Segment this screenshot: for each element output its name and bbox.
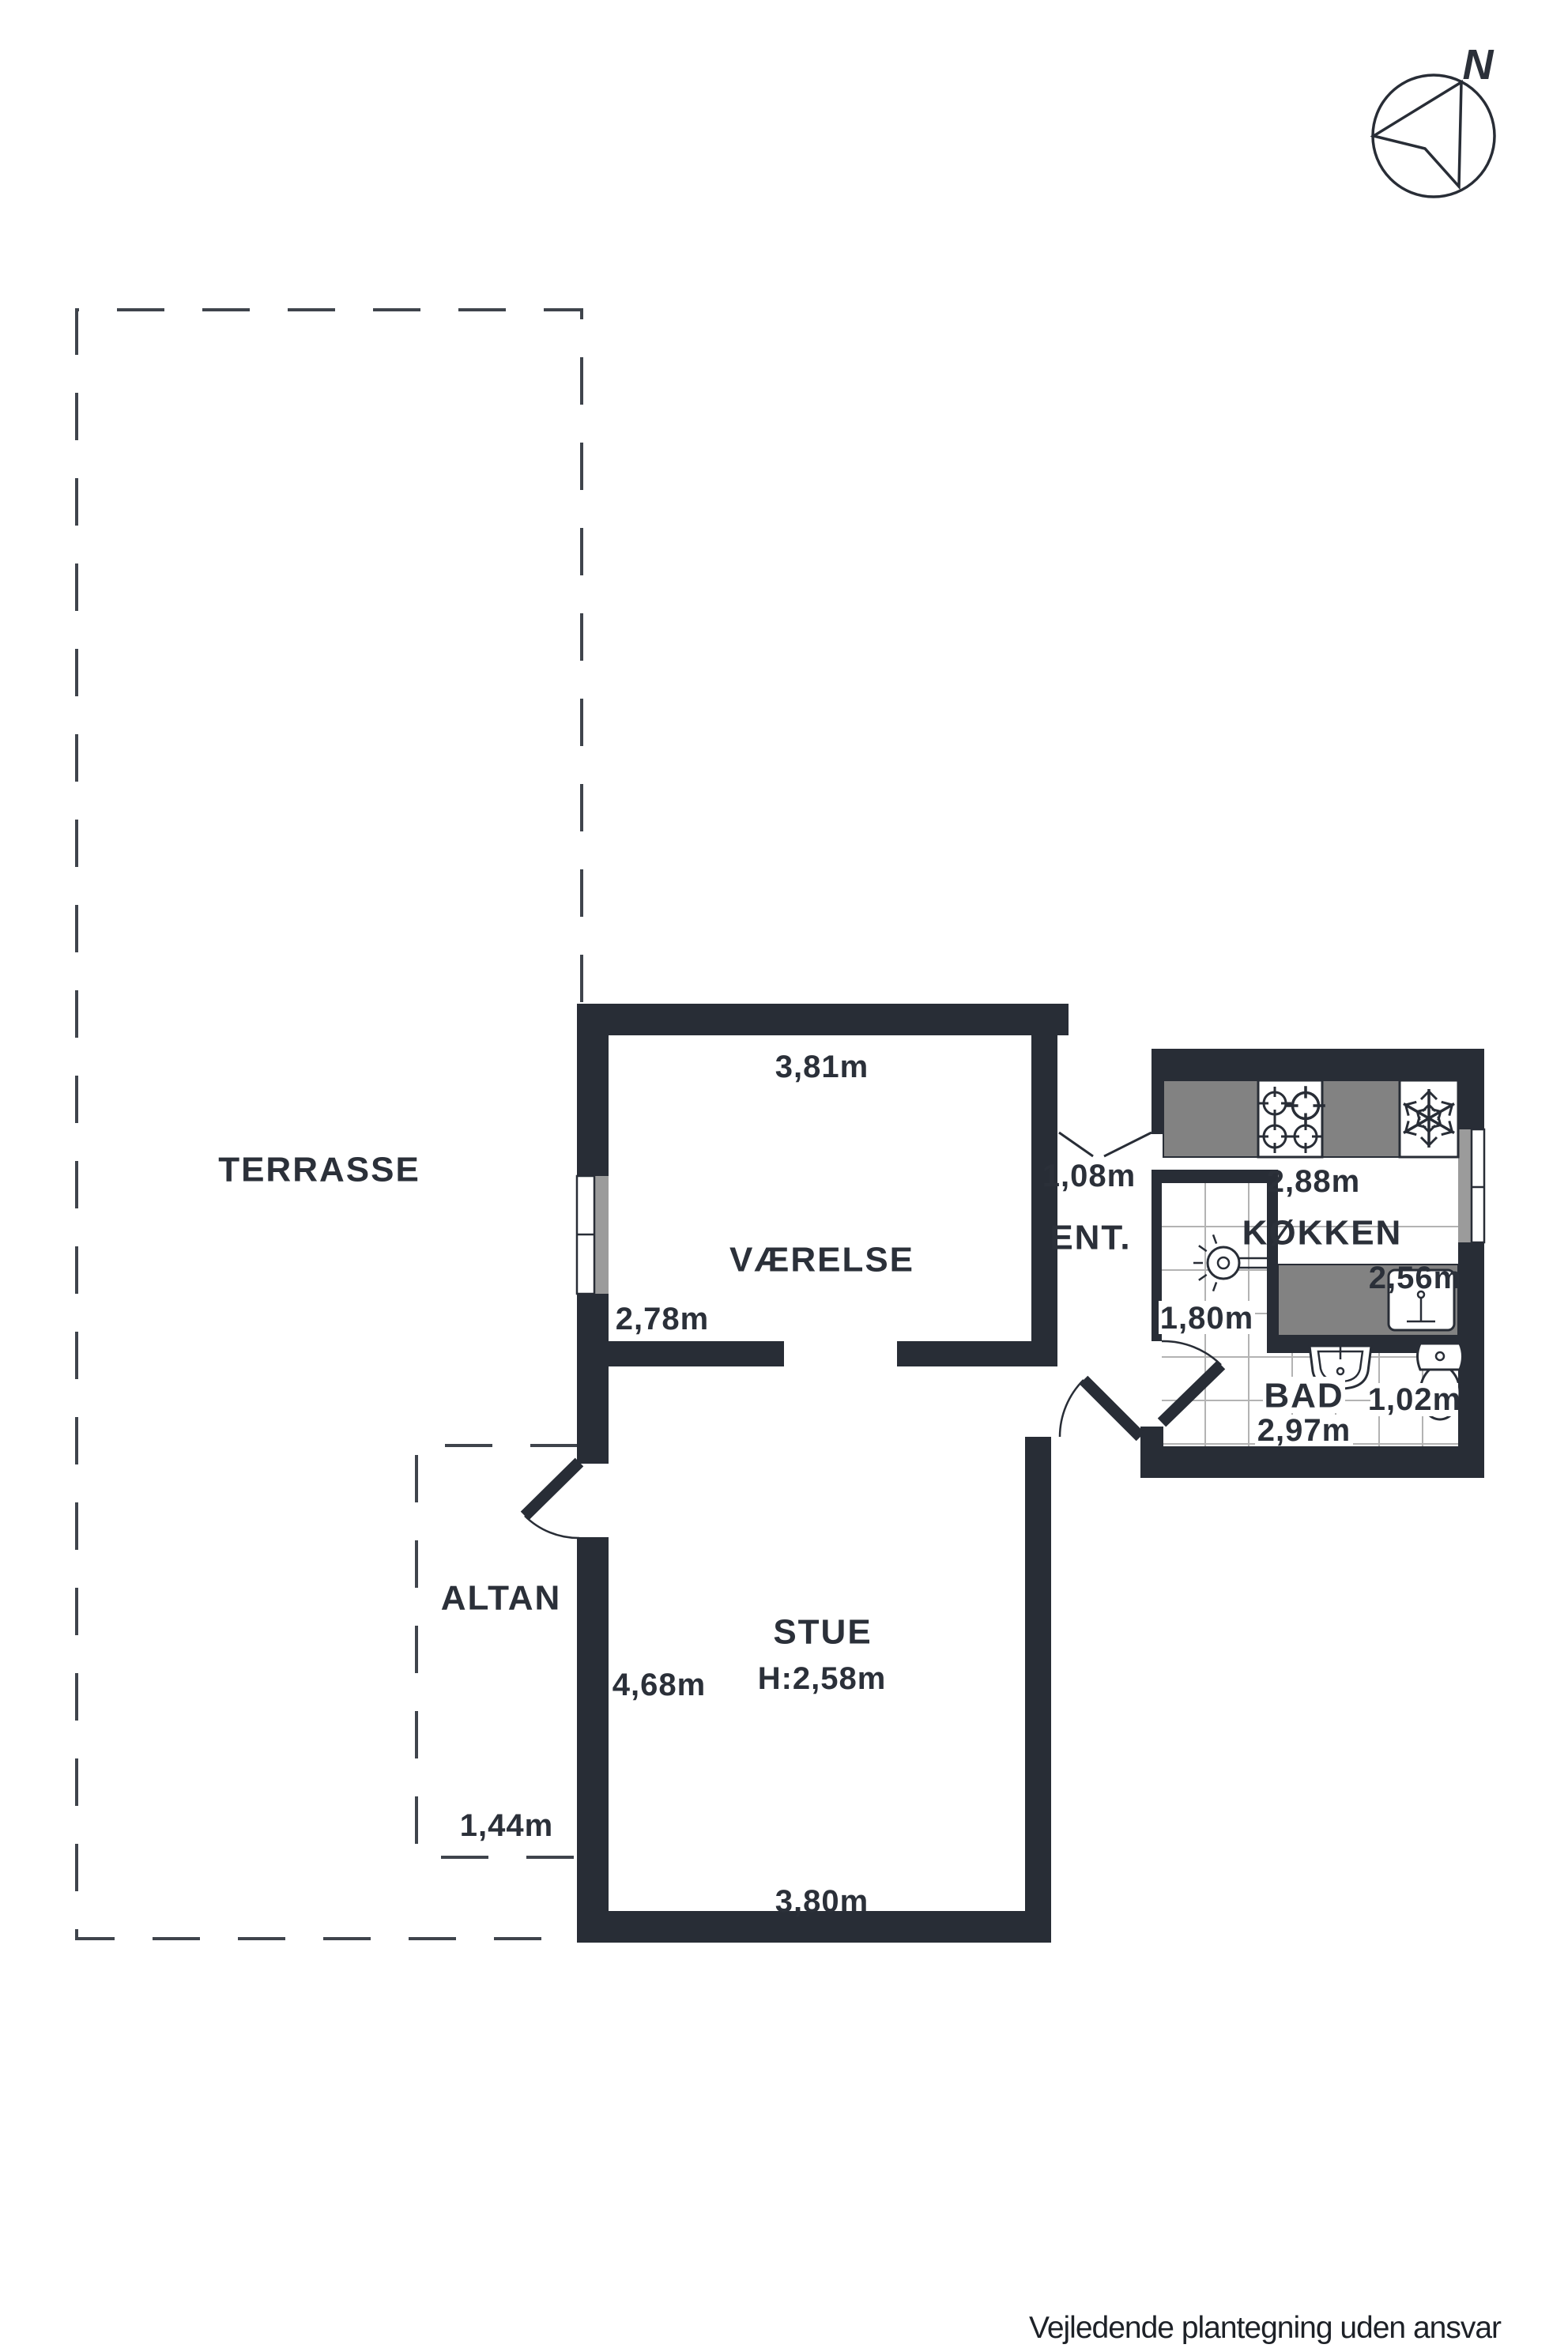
room-stue: STUE H:2,58m 4,68m 3,80m <box>612 1613 887 1920</box>
terrasse-dashed-outline <box>77 310 582 1939</box>
vaerelse-stue-wall-left-stub <box>607 1341 784 1366</box>
shower-right-wall <box>1267 1183 1278 1336</box>
terrasse-area: TERRASSE <box>77 310 582 1939</box>
bad-depth-dim: 1,02m <box>1368 1382 1461 1417</box>
altan-label: ALTAN <box>441 1579 562 1618</box>
koekken-width-dim: 2,88m <box>1267 1164 1360 1199</box>
left-wall-mid <box>577 1294 609 1464</box>
terrasse-label: TERRASSE <box>218 1151 420 1189</box>
doors <box>525 1341 1221 1538</box>
ent-label: ENT. <box>1050 1219 1131 1257</box>
compass-north-icon: N <box>1373 41 1494 197</box>
altan-area: ALTAN 1,44m <box>416 1445 578 1857</box>
vaerelse-ent-wall <box>1031 1035 1057 1366</box>
stue-label: STUE <box>773 1613 872 1652</box>
vaerelse-window <box>577 1176 609 1294</box>
stove-icon <box>1258 1080 1325 1157</box>
altan-dashed-outline <box>416 1445 578 1857</box>
vaerelse-label: VÆRELSE <box>729 1241 914 1280</box>
stue-right-wall <box>1025 1437 1051 1911</box>
bad-width-dim: 2,97m <box>1257 1413 1351 1448</box>
stue-ceiling-dim: H:2,58m <box>758 1661 887 1696</box>
floorplan-page: TERRASSE ALTAN 1,44m <box>0 0 1568 2352</box>
altan-width-dim: 1,44m <box>460 1808 553 1843</box>
compass-n-label: N <box>1463 41 1494 89</box>
bad-label: BAD <box>1264 1377 1344 1415</box>
footer-disclaimer: Vejledende plantegning uden ansvar <box>1029 2311 1502 2345</box>
right-wall-upper <box>1458 1049 1484 1129</box>
koekken-label: KØKKEN <box>1242 1214 1403 1253</box>
vaerelse-depth-dim: 2,78m <box>616 1302 709 1336</box>
vaerelse-top-wall <box>577 1004 1069 1035</box>
stue-width-dim: 3,80m <box>775 1884 869 1919</box>
left-wall-lower <box>577 1537 609 1943</box>
bad-bottom-wall <box>1140 1446 1484 1478</box>
entrance-pier <box>1151 1080 1163 1134</box>
koekken-depth-dim: 2,56m <box>1369 1261 1462 1295</box>
entrance-opening <box>1059 1133 1151 1156</box>
fridge-icon <box>1400 1080 1458 1157</box>
vaerelse-stue-wall-right-stub <box>897 1341 1043 1366</box>
koekken-top-wall <box>1151 1049 1484 1080</box>
altan-door <box>525 1462 579 1538</box>
left-wall-upper <box>577 1004 609 1176</box>
vaerelse-width-dim: 3,81m <box>775 1050 869 1084</box>
koekken-window <box>1458 1129 1484 1242</box>
shower-depth-dim: 1,80m <box>1160 1301 1253 1336</box>
stue-door <box>1060 1380 1140 1437</box>
ent-width-dim: 1,08m <box>1042 1159 1136 1193</box>
room-vaerelse: 3,81m VÆRELSE 2,78m <box>616 1050 914 1336</box>
stue-depth-dim: 4,68m <box>612 1668 706 1702</box>
shower-top-wall <box>1151 1170 1278 1183</box>
